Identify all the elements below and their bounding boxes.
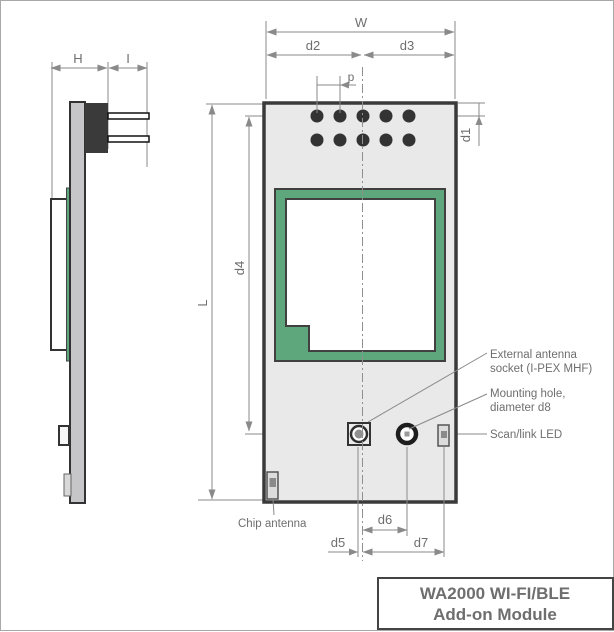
- pin-hole: [334, 134, 347, 147]
- front-view: [264, 103, 456, 502]
- callout-mounting-hole-line2: diameter d8: [490, 402, 551, 414]
- title-block: WA2000 WI-FI/BLE Add-on Module: [378, 578, 613, 629]
- label-I: I: [126, 51, 130, 66]
- chip-antenna: [267, 472, 278, 499]
- label-d6: d6: [378, 512, 392, 527]
- arrowhead: [349, 549, 358, 556]
- label-L: L: [195, 299, 210, 306]
- antenna-keepout-area: [286, 199, 435, 351]
- pin-hole: [380, 110, 393, 123]
- side-antenna-socket: [59, 426, 69, 445]
- callout-external-antenna-line2: socket (I-PEX MHF): [490, 363, 592, 375]
- mounting-hole: [398, 425, 416, 443]
- mounting-hole-center: [405, 432, 410, 437]
- label-d5: d5: [331, 535, 345, 550]
- drawing-page: H I L d4: [0, 0, 614, 631]
- label-d4: d4: [232, 261, 247, 275]
- technical-drawing: H I L d4: [1, 1, 614, 632]
- side-component-outline: [51, 199, 68, 350]
- side-view: H I: [51, 51, 149, 503]
- arrowhead: [476, 116, 483, 125]
- side-connector-block: [85, 103, 108, 153]
- scan-link-led: [438, 425, 449, 446]
- label-d1: d1: [458, 128, 473, 142]
- led-die: [441, 431, 447, 438]
- external-antenna-socket: [348, 423, 370, 445]
- callout-mounting-hole-line1: Mounting hole,: [490, 388, 565, 400]
- chip-antenna-die: [270, 478, 277, 487]
- side-chip-antenna: [64, 474, 71, 496]
- label-p: p: [348, 70, 355, 84]
- callout-external-antenna-line1: External antenna: [490, 349, 578, 361]
- pin-hole: [311, 134, 324, 147]
- side-pcb-bar: [70, 102, 85, 503]
- callout-scan-link-led: Scan/link LED: [490, 429, 562, 441]
- label-d2: d2: [306, 38, 320, 53]
- title-line1: WA2000 WI-FI/BLE: [420, 584, 570, 603]
- label-d7: d7: [414, 535, 428, 550]
- label-d3: d3: [400, 38, 414, 53]
- pin-hole: [380, 134, 393, 147]
- pin-hole: [403, 134, 416, 147]
- title-line2: Add-on Module: [433, 605, 557, 624]
- label-H: H: [73, 51, 82, 66]
- pin-hole: [403, 110, 416, 123]
- connector-pin: [108, 136, 149, 142]
- label-W: W: [355, 15, 368, 30]
- connector-pin: [108, 113, 149, 119]
- callout-chip-antenna: Chip antenna: [238, 518, 307, 530]
